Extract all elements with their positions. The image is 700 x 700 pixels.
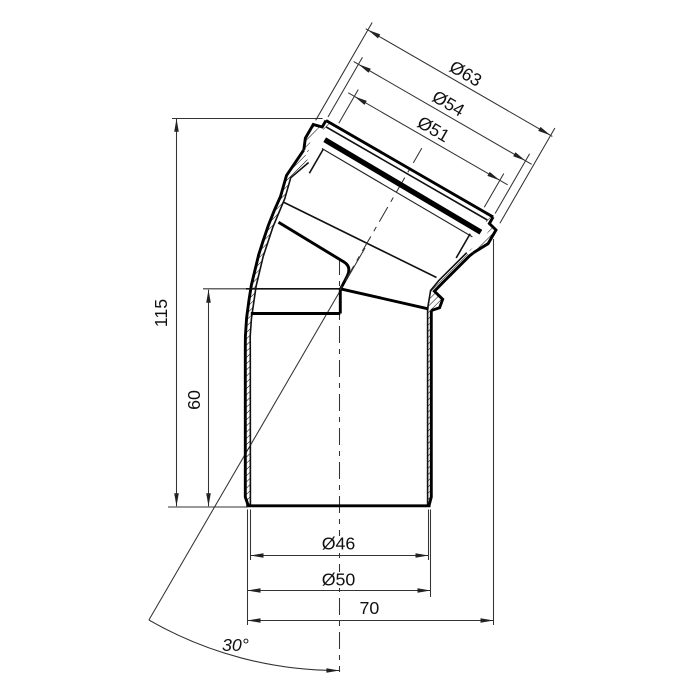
svg-text:60: 60: [184, 390, 204, 410]
svg-text:115: 115: [151, 299, 171, 327]
svg-text:70: 70: [360, 598, 380, 618]
svg-text:Ø46: Ø46: [322, 533, 356, 553]
svg-text:Ø50: Ø50: [322, 569, 356, 589]
svg-text:30°: 30°: [222, 635, 249, 655]
